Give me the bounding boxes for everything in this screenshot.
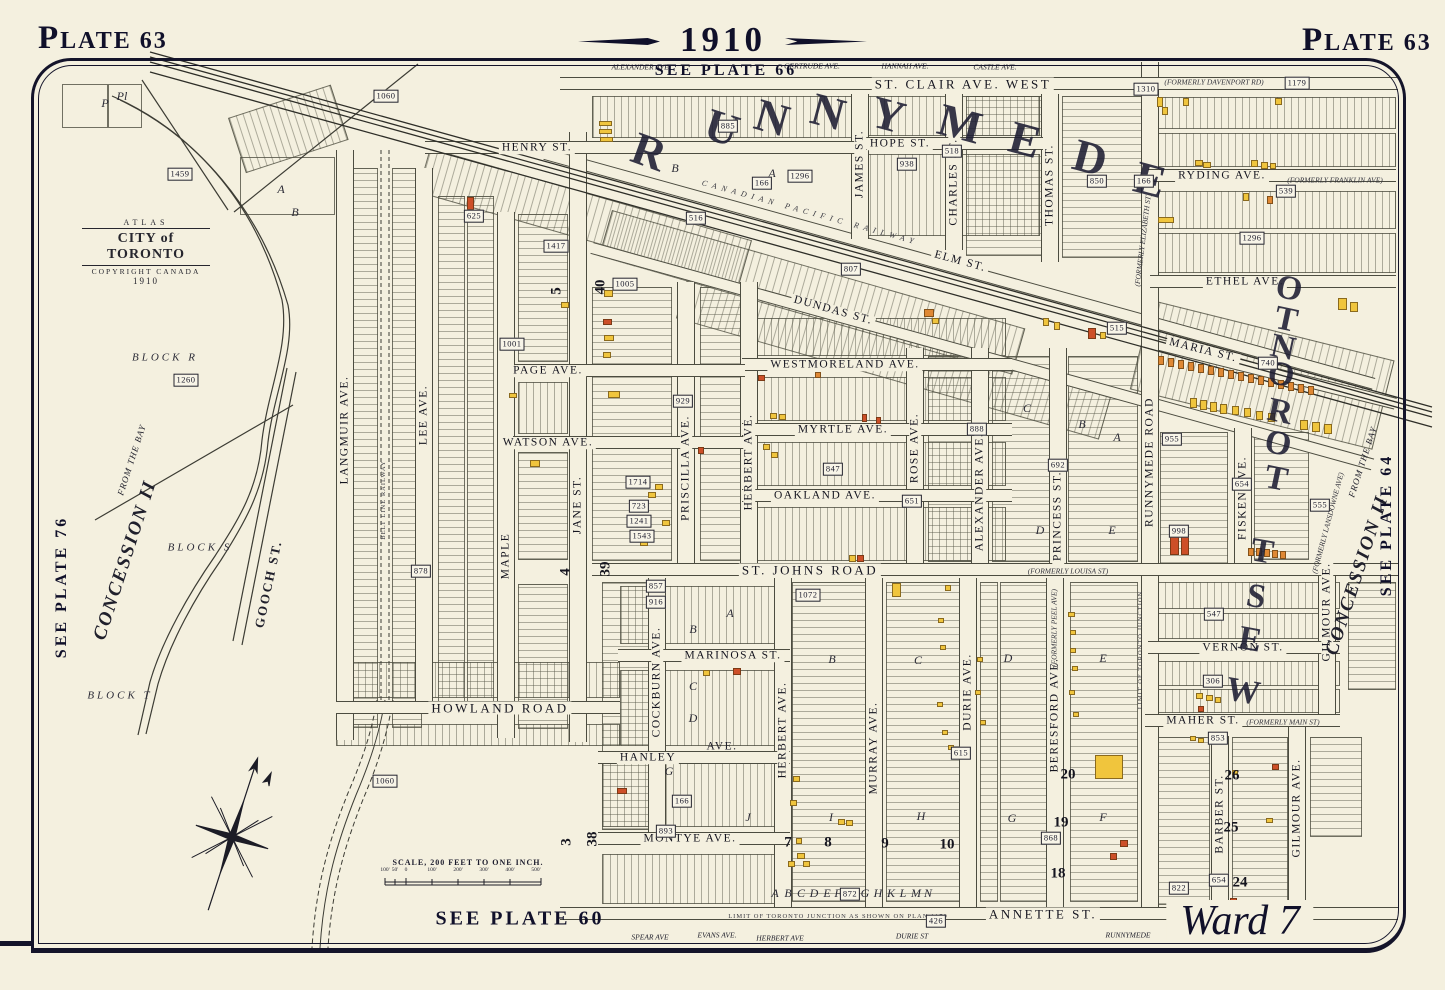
building	[797, 853, 805, 859]
annotation-evans-ave: EVANS AVE.	[698, 931, 737, 939]
ghost-letter-runnymede: Y	[866, 88, 910, 141]
building	[1054, 322, 1060, 330]
plan-badge-1060: 1060	[373, 775, 398, 788]
street-lee-ave	[415, 168, 433, 713]
street-label-murray-ave: MURRAY AVE.	[868, 699, 880, 798]
plan-badge-1072: 1072	[796, 589, 821, 602]
lot-block	[602, 757, 790, 827]
plan-numeral: 7	[784, 836, 792, 851]
building	[1215, 697, 1221, 703]
street-label-maria-st: MARIA ST.	[1165, 336, 1241, 365]
lot-block	[518, 382, 568, 434]
street-jane-st	[569, 132, 587, 742]
plan-badge-306: 306	[1203, 675, 1223, 688]
annotation-concession-ii: CONCESSION II	[90, 478, 160, 643]
street-label-howland-road: HOWLAND ROAD	[428, 702, 571, 715]
building	[1073, 712, 1079, 717]
building	[1178, 360, 1184, 369]
building	[1220, 404, 1227, 414]
fan-line-1	[142, 80, 228, 210]
street-murray-ave	[865, 578, 883, 908]
building	[603, 319, 612, 325]
ghost-letter-toronto: N	[1267, 329, 1298, 367]
building	[617, 788, 627, 794]
building	[733, 668, 741, 675]
lot-block	[756, 318, 1006, 356]
ghost-letter-west: W	[1223, 672, 1262, 711]
building	[1270, 163, 1276, 169]
block-label-block-t: BLOCK T	[87, 691, 152, 702]
street-hanley	[598, 751, 790, 764]
scale-tick: 100'	[380, 867, 389, 873]
plan-numeral: 4	[559, 568, 574, 576]
map-year-title: 1910	[680, 20, 766, 60]
plan-badge-426: 426	[926, 915, 946, 928]
building	[1069, 690, 1075, 695]
plan-badge-1310: 1310	[1134, 83, 1159, 96]
block-letter: A	[277, 183, 284, 195]
plan-badge-1241: 1241	[627, 515, 652, 528]
ghost-letter-runnymede: D	[1068, 131, 1112, 184]
block-letter: D	[689, 712, 698, 724]
ghost-letter-west: T	[1248, 533, 1276, 570]
lot-block	[392, 168, 422, 728]
lot-block	[1160, 432, 1228, 564]
plan-numeral: 39	[599, 562, 614, 577]
street-label-lee-ave: LEE AVE.	[418, 382, 430, 448]
street-cockburn-ave	[648, 578, 666, 832]
street-label-marinosa-st: MARINOSA ST.	[681, 650, 784, 662]
block-letter: F	[834, 887, 841, 899]
plate-number-right: PLATE 63	[1302, 22, 1432, 59]
atlas-logo: ATLAS CITY of TORONTO COPYRIGHT CANADA 1…	[82, 218, 210, 286]
building	[1100, 332, 1106, 339]
plan-badge-651: 651	[902, 495, 922, 508]
street-label-oakland-ave: OAKLAND AVE.	[771, 490, 879, 502]
block-letter: E	[1108, 524, 1115, 536]
building	[793, 776, 800, 782]
lot-block	[1348, 582, 1396, 690]
street-label-gilmour-ave: GILMOUR AVE.	[1291, 756, 1303, 861]
building	[862, 414, 867, 422]
street-fisken-ave	[1234, 428, 1252, 568]
building	[1275, 98, 1282, 105]
annotation-herbert-ave: HERBERT AVE	[756, 934, 803, 942]
plan-numeral: 10	[940, 838, 955, 853]
lot-block	[467, 196, 494, 711]
building	[604, 290, 613, 297]
block-letter: D	[810, 887, 819, 899]
lot-outline	[62, 84, 108, 128]
street-label-myrtle-ave: MYRTLE AVE.	[795, 424, 891, 436]
annotation-gooch-st: GOOCH ST.	[252, 539, 283, 629]
lot-block	[1130, 300, 1395, 450]
street-beresford-ave	[1046, 578, 1064, 908]
street-vernon-st	[1148, 641, 1340, 654]
scale-tick: 300'	[479, 867, 488, 873]
building	[1268, 378, 1274, 387]
street-ethel-ave	[1150, 275, 1396, 288]
building	[1251, 160, 1258, 167]
plan-badge-1060: 1060	[374, 90, 399, 103]
block-letter: A	[768, 167, 775, 179]
block-letter: B	[828, 653, 835, 665]
street-rose-ave	[906, 348, 924, 564]
annotation-castle-ave: CASTLE AVE.	[973, 63, 1016, 71]
plan-badge-166: 166	[752, 177, 772, 190]
building	[530, 460, 540, 467]
gooch-street-line-1	[242, 372, 296, 645]
survey-line	[95, 405, 293, 520]
lot-block	[1150, 133, 1396, 167]
atlas-plate-63: ST. CLAIR AVE. WESTHENRY ST.HOPE ST.RYDI…	[0, 0, 1445, 990]
annotation-belt-line-railway: BELT LINE RAILWAY	[381, 460, 388, 539]
plan-badge-1179: 1179	[1285, 77, 1310, 90]
block-letter: H	[874, 887, 883, 899]
building	[1198, 738, 1204, 743]
street-hope-st	[858, 137, 1043, 150]
block-letter: C	[689, 680, 697, 692]
street-label-alexander-ave: ALEXANDER AVE.	[974, 430, 986, 555]
ghost-letter-runnymede: R	[626, 125, 673, 180]
block-letter: G	[861, 887, 870, 899]
building	[1206, 695, 1213, 701]
street-page-ave	[515, 364, 745, 377]
lot-block	[620, 670, 788, 746]
ghost-letter-toronto: O	[1265, 356, 1298, 395]
annotation-formerly-elizabeth-st: (FORMERLY ELIZABETH ST)	[1134, 193, 1153, 287]
logo-city-of-toronto: CITY of TORONTO	[82, 228, 210, 266]
lot-block	[602, 854, 790, 904]
lot-block	[336, 724, 620, 746]
annotation-formerly-peel-ave: (FORMERLY PEEL AVE)	[1050, 589, 1058, 667]
block-letter: C	[1023, 402, 1031, 414]
plan-numeral: 9	[881, 837, 889, 852]
street-label-priscilla-ave: PRISCILLA AVE.	[680, 412, 692, 524]
building	[608, 391, 620, 398]
building	[803, 861, 810, 867]
building	[1070, 648, 1076, 653]
lot-block	[862, 96, 1040, 136]
building	[940, 645, 946, 650]
street-herbert-ave	[740, 282, 758, 564]
lot-block	[676, 276, 1111, 440]
annotation-formerly-davenport-rd: (FORMERLY DAVENPORT RD)	[1164, 78, 1263, 86]
street-label-barber-st: BARBER ST.	[1214, 771, 1226, 856]
building	[977, 657, 983, 662]
lot-block	[417, 148, 752, 285]
building	[938, 618, 944, 623]
building	[1266, 818, 1273, 823]
building	[1288, 382, 1294, 391]
street-langmuir-ave	[336, 150, 354, 740]
annotation-formerly-main-st: (FORMERLY MAIN ST)	[1246, 718, 1319, 726]
street-label-gilmour-ave: GILMOUR AVE.	[1321, 560, 1333, 665]
cpr-track-2	[150, 57, 1432, 412]
street-label-beresford-ave: BERESFORD AVE.	[1049, 655, 1061, 776]
street-henry-st	[425, 141, 855, 154]
lot-block	[756, 377, 1006, 421]
plan-badge-857: 857	[646, 580, 666, 593]
street-barber-st	[1211, 736, 1229, 906]
plan-badge-723: 723	[629, 500, 649, 513]
ward-label: Ward 7	[1166, 900, 1313, 942]
building	[1190, 398, 1197, 408]
building	[703, 670, 710, 676]
plan-badge-955: 955	[1162, 433, 1182, 446]
lot-block	[928, 356, 976, 562]
ravine-creek-2	[120, 100, 290, 734]
building	[509, 393, 517, 398]
block-letter: J	[745, 811, 750, 823]
plan-badge-1296: 1296	[788, 170, 813, 183]
building	[1170, 535, 1179, 555]
curving-road-west-dash	[312, 700, 377, 948]
building	[1244, 408, 1251, 417]
street-label-runnymede-road: RUNNYMEDE ROAD	[1144, 394, 1156, 530]
street-st-johns-road	[592, 563, 1398, 576]
plan-badge-516: 516	[686, 212, 706, 225]
building	[892, 583, 901, 597]
ravine-creek	[112, 96, 284, 735]
see-plate-64: SEE PLATE 64	[1378, 454, 1396, 596]
street-label-charles-st: CHARLES ST.	[948, 135, 960, 228]
lot-block	[966, 96, 1046, 256]
building	[1298, 384, 1304, 393]
lot-block	[1062, 96, 1142, 258]
street-label-maher-st: MAHER ST.	[1163, 715, 1242, 727]
plan-badge-547: 547	[1204, 608, 1224, 621]
ghost-letter-runnymede: N	[806, 85, 850, 138]
cpr-track-4	[150, 72, 1432, 427]
plan-badge-515: 515	[1107, 322, 1127, 335]
annotation-limit-of-toronto-junction-as-shown-on-plan-1179: LIMIT OF TORONTO JUNCTION AS SHOWN ON PL…	[728, 914, 948, 921]
block-letter: D	[1004, 652, 1013, 664]
building	[857, 555, 864, 562]
plan-badge-1005: 1005	[613, 278, 638, 291]
building	[1068, 612, 1075, 617]
annotation-formerly-franklin-ave: (FORMERLY FRANKLIN AVE)	[1287, 176, 1383, 184]
building	[1256, 548, 1262, 556]
cpr-track-1	[150, 52, 1432, 407]
building	[924, 309, 934, 317]
building	[1248, 374, 1254, 383]
ghost-letter-west: E	[1236, 621, 1264, 658]
ghost-letter-toronto: R	[1264, 393, 1295, 431]
building	[758, 375, 765, 381]
plan-badge-847: 847	[823, 463, 843, 476]
plan-badge-166: 166	[672, 795, 692, 808]
lot-block	[792, 582, 870, 902]
building	[1268, 413, 1275, 422]
building	[1196, 693, 1203, 699]
lot-block	[1150, 97, 1396, 129]
building	[975, 690, 981, 695]
street-label-st-johns-road: ST. JOHNS ROAD	[739, 564, 881, 577]
street-maple	[497, 212, 515, 738]
see-plate-76: SEE PLATE 76	[53, 516, 71, 658]
street-label-st-clair-ave-west: ST. CLAIR AVE. WEST	[872, 78, 1054, 91]
building	[604, 335, 614, 341]
building	[1181, 535, 1189, 555]
street-maher-st	[1145, 714, 1340, 727]
plan-numeral: 38	[586, 832, 601, 847]
plan-numeral: 25	[1224, 821, 1239, 836]
ghost-letter-west: S	[1244, 579, 1269, 616]
block-letter: C	[797, 887, 805, 899]
street-thomas-st	[1041, 94, 1059, 262]
block-letter: P	[101, 97, 108, 109]
building	[770, 413, 777, 419]
building	[1208, 366, 1214, 375]
building	[1267, 196, 1273, 204]
cpr-track-3	[150, 62, 1432, 417]
plan-numeral: 5	[550, 287, 565, 295]
plan-badge-654: 654	[1232, 478, 1252, 491]
building	[1158, 356, 1164, 365]
block-letter: N	[924, 887, 932, 899]
lot-block	[1254, 432, 1309, 560]
ghost-letter-toronto: O	[1262, 425, 1295, 464]
street-label-elm-st: ELM ST.	[930, 249, 990, 276]
curving-road-west	[320, 700, 385, 948]
plan-badge-1001: 1001	[500, 338, 525, 351]
compass-rose	[187, 752, 277, 922]
see-plate-60: SEE PLATE 60	[436, 908, 605, 931]
block-letter: K	[887, 887, 895, 899]
plan-badge-1417: 1417	[544, 240, 569, 253]
lot-block	[1150, 661, 1340, 686]
plan-badge-878: 878	[411, 565, 431, 578]
street-westmoreland-ave	[742, 358, 1012, 371]
plan-badge-850: 850	[1087, 175, 1107, 188]
building	[1070, 630, 1076, 635]
block-letter: E	[823, 887, 830, 899]
street-howland-road	[336, 701, 620, 714]
street-label-ethel-ave: ETHEL AVE.	[1203, 276, 1287, 288]
building	[779, 414, 786, 420]
block-letter: M	[911, 887, 921, 899]
street-label-ryding-ave: RYDING AVE.	[1175, 170, 1269, 182]
lot-block	[992, 356, 1054, 562]
annotation-formerly-louisa-st: (FORMERLY LOUISA ST)	[1028, 567, 1109, 575]
block-letter: E	[1099, 652, 1106, 664]
ghost-letter-runnymede: E	[1129, 154, 1171, 206]
building	[1228, 370, 1234, 379]
plan-badge-1260: 1260	[174, 374, 199, 387]
lot-block	[1150, 737, 1210, 905]
building	[1272, 764, 1279, 770]
building	[948, 745, 954, 750]
plan-badge-872: 872	[840, 888, 860, 901]
street-label-jane-st: JANE ST.	[572, 473, 584, 537]
scale-bar: SCALE, 200 FEET TO ONE INCH. 100'50'0100…	[383, 858, 553, 893]
block-letter: A	[771, 887, 778, 899]
building	[1232, 770, 1238, 775]
building	[655, 484, 663, 490]
plan-numeral: 24	[1233, 876, 1248, 891]
building	[942, 730, 948, 735]
plan-badge-885: 885	[718, 120, 738, 133]
building	[771, 452, 778, 458]
building	[1280, 551, 1286, 559]
annotation-formerly-lansdowne-ave: (FORMERLY LANSDOWNE AVE)	[1311, 472, 1345, 575]
street-runnymede-road	[1141, 62, 1159, 908]
building	[599, 121, 612, 126]
building	[1043, 318, 1049, 326]
plan-numeral: 8	[824, 836, 832, 851]
scale-tick: 400'	[505, 867, 514, 873]
building	[1183, 98, 1189, 106]
plan-numeral: 3	[560, 838, 575, 846]
building	[698, 447, 704, 454]
block-letter: B	[671, 162, 678, 174]
plate-number-left: PLATE 63	[38, 20, 168, 57]
building	[467, 197, 474, 210]
block-letter: B	[291, 206, 298, 218]
streets-layer	[0, 0, 1445, 990]
street-label-langmuir-ave: LANGMUIR AVE.	[339, 373, 351, 488]
street-label-montye-ave: MONTYE AVE.	[641, 833, 740, 845]
building	[937, 702, 943, 707]
plan-badge-539: 539	[1276, 185, 1296, 198]
plan-badge-916: 916	[646, 596, 666, 609]
lot-blocks-layer	[0, 0, 1445, 990]
curving-road-east	[328, 700, 393, 948]
street-alexander-ave	[971, 348, 989, 564]
lot-block	[1232, 737, 1288, 905]
street-label-thomas-st: THOMAS ST.	[1044, 141, 1056, 229]
block-letter: L	[900, 887, 907, 899]
building	[932, 318, 939, 324]
plan-badge-615: 615	[951, 747, 971, 760]
street-oakland-ave	[742, 489, 1012, 502]
plan-badge-893: 893	[656, 825, 676, 838]
street-label-watson-ave: WATSON AVE.	[500, 437, 596, 449]
ghost-letter-toronto: T	[1261, 460, 1290, 498]
plan-badge-740: 740	[1258, 357, 1278, 370]
building	[876, 417, 881, 424]
lot-block	[602, 582, 652, 830]
building	[1110, 853, 1117, 860]
building	[1158, 217, 1174, 223]
building	[1210, 402, 1217, 412]
annotation-from-the-bay: FROM THE BAY	[116, 423, 147, 496]
plan-badge-929: 929	[673, 395, 693, 408]
lot-block	[599, 210, 1026, 375]
lot-block	[1070, 582, 1138, 902]
building	[788, 861, 795, 867]
lot-outline	[108, 84, 142, 128]
street-marinosa-st	[618, 649, 790, 662]
building	[1162, 107, 1168, 115]
block-label-block-r: BLOCK R	[132, 353, 198, 364]
scale-tick: 200'	[453, 867, 462, 873]
building	[1198, 706, 1204, 712]
block-label-block-s: BLOCK S	[168, 543, 233, 554]
building	[1095, 755, 1123, 779]
gooch-street-line-2	[233, 368, 287, 641]
logo-year: 1910	[82, 276, 210, 286]
annotation-hannah-ave: HANNAH AVE.	[882, 62, 929, 70]
plan-badge-888: 888	[967, 423, 987, 436]
street-maria-st	[1147, 336, 1397, 409]
lot-block	[518, 584, 568, 729]
ghost-letter-toronto: T	[1271, 301, 1300, 339]
lot-block	[518, 452, 568, 560]
building	[1195, 160, 1203, 166]
see-plate-66: SEE PLATE 66	[655, 62, 797, 80]
